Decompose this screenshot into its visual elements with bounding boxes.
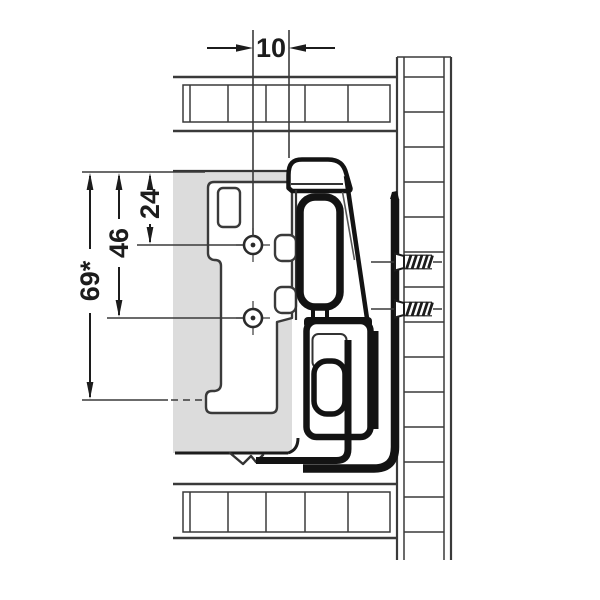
dimension-24: 24 (135, 173, 165, 244)
dimension-46: 46 (104, 173, 134, 317)
technical-drawing-page: 10 24 46 69* (0, 0, 600, 600)
euro-screw-bottom (371, 301, 442, 318)
runner-cap (289, 160, 351, 192)
runner-channel (300, 197, 340, 307)
cabinet-bottom-panel (173, 484, 396, 538)
bracket-tab-lower (275, 287, 296, 313)
roller (314, 361, 345, 414)
euro-screw-top (371, 254, 442, 271)
bracket-slot (218, 188, 240, 227)
drawer-installation-diagram: 10 24 46 69* (0, 0, 600, 600)
dimension-69: 69* (75, 173, 105, 399)
runner-diagonal (346, 176, 369, 332)
drawer-runner-front (289, 160, 370, 333)
dimension-46-label: 46 (104, 228, 134, 258)
roller-carriage (304, 317, 379, 437)
dimension-10-label: 10 (256, 33, 286, 63)
cabinet-top-panel (173, 77, 396, 131)
dimension-24-label: 24 (135, 189, 165, 219)
dimension-69-label: 69* (75, 260, 105, 301)
bracket-tab-upper (275, 235, 296, 261)
